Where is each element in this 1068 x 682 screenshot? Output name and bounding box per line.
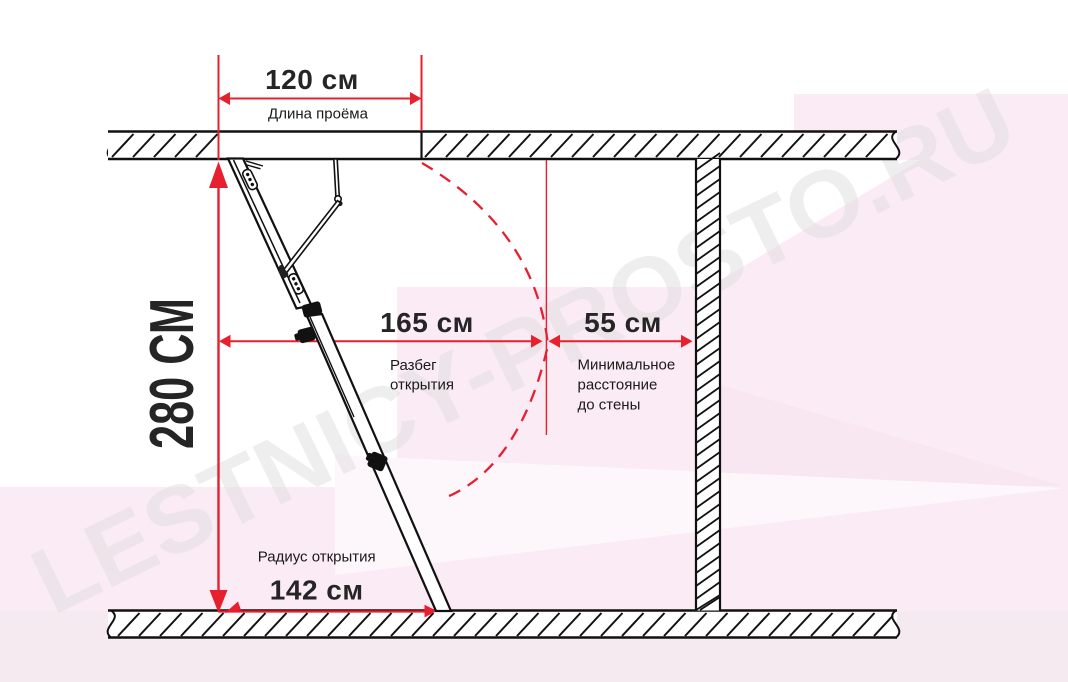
svg-text:120 см: 120 см: [265, 64, 359, 95]
svg-text:Минимальное: Минимальное: [578, 357, 676, 374]
svg-text:до стены: до стены: [578, 397, 641, 414]
svg-text:280 СМ: 280 СМ: [138, 298, 207, 449]
svg-text:Радиус открытия: Радиус открытия: [258, 549, 376, 566]
svg-text:расстояние: расстояние: [578, 377, 658, 394]
svg-text:Разбег: Разбег: [390, 357, 437, 374]
svg-text:открытия: открытия: [390, 377, 454, 394]
svg-text:55 см: 55 см: [584, 307, 662, 338]
svg-text:165 см: 165 см: [380, 307, 474, 338]
svg-text:Длина проёма: Длина проёма: [268, 106, 369, 123]
svg-text:142 см: 142 см: [270, 575, 364, 606]
